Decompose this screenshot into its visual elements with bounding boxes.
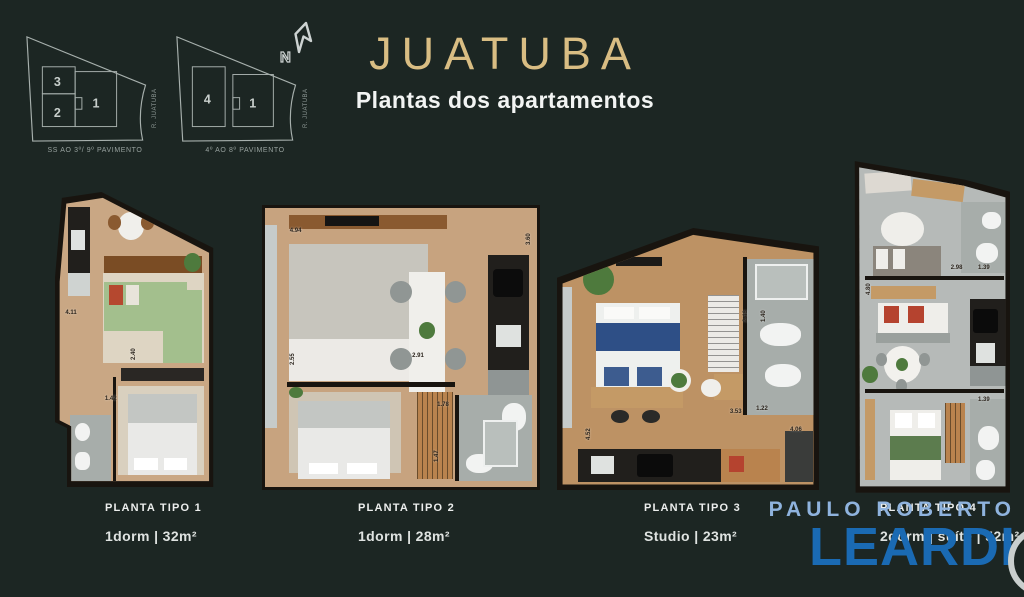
- floorplan-tipo-1: 4.112.401.42: [55, 192, 227, 487]
- plan2-spec: 1dorm | 28m²: [358, 528, 455, 544]
- plan2-dims: 4.943.602.552.911.781.47: [262, 205, 540, 490]
- keyplan1-caption: SS AO 3º/ 9º PAVIMENTO: [20, 147, 170, 154]
- plan1-label: PLANTA TIPO 1 1dorm | 32m²: [105, 502, 202, 544]
- north-arrow-icon: N: [278, 20, 314, 64]
- dimension-label: 1.39: [978, 397, 990, 403]
- keyplan-floors-ss-3-9: 3 2 1: [25, 30, 160, 146]
- floorplan-tipo-4: 2.981.394.801.39: [850, 156, 1010, 496]
- plan3-name: PLANTA TIPO 3: [644, 502, 741, 514]
- dimension-label: 2.46: [743, 311, 749, 323]
- street-label-juatuba-2: R. JUATUBA: [303, 88, 309, 128]
- plan2-label: PLANTA TIPO 2 1dorm | 28m²: [358, 502, 455, 544]
- floorplan-tipo-3: 4.522.461.403.531.224.06: [557, 228, 819, 490]
- street-label-juatuba-1: R. JUATUBA: [152, 88, 158, 128]
- dimension-label: 1.42: [105, 396, 117, 402]
- watermark-line2: LEARDI: [769, 522, 1016, 573]
- keyplan1-unit-3: 3: [54, 75, 61, 89]
- dimension-label: 2.91: [412, 353, 424, 359]
- dimension-label: 4.52: [586, 429, 592, 441]
- dimension-label: 1.40: [761, 311, 767, 323]
- plan3-dims: 4.522.461.403.531.224.06: [557, 228, 819, 490]
- keyplan1-unit-1: 1: [93, 96, 100, 110]
- plan3-spec: Studio | 23m²: [644, 528, 741, 544]
- dimension-label: 2.98: [951, 265, 963, 271]
- plan1-dims: 4.112.401.42: [55, 192, 227, 487]
- dimension-label: 4.94: [290, 228, 302, 234]
- floorplan-poster: 3 2 1 R. JUATUBA SS AO 3º/ 9º PAVIMENTO …: [0, 0, 1024, 597]
- keyplan2-unit-4: 4: [204, 92, 211, 106]
- dimension-label: 1.78: [437, 402, 449, 408]
- keyplan1-unit-2: 2: [54, 106, 61, 120]
- dimension-label: 2.40: [131, 348, 137, 360]
- dimension-label: 3.53: [730, 409, 742, 415]
- header: JUATUBA Plantas dos apartamentos: [330, 30, 680, 114]
- dimension-label: 4.80: [866, 284, 872, 296]
- plan3-label: PLANTA TIPO 3 Studio | 23m²: [644, 502, 741, 544]
- dimension-label: 1.47: [434, 450, 440, 462]
- dimension-label: 4.06: [790, 427, 802, 433]
- plan1-spec: 1dorm | 32m²: [105, 528, 202, 544]
- dimension-label: 3.60: [526, 233, 532, 245]
- plan1-name: PLANTA TIPO 1: [105, 502, 202, 514]
- keyplan2-caption: 4º AO 8º PAVIMENTO: [170, 147, 320, 154]
- project-title: JUATUBA: [330, 30, 680, 77]
- dimension-label: 1.22: [756, 406, 768, 412]
- dimension-label: 1.39: [978, 265, 990, 271]
- plan2-name: PLANTA TIPO 2: [358, 502, 455, 514]
- north-letter: N: [280, 49, 291, 64]
- dimension-label: 4.11: [65, 310, 76, 316]
- dimension-label: 2.55: [290, 353, 296, 365]
- leardi-watermark: PAULO ROBERTO LEARDI: [769, 498, 1016, 573]
- page-subtitle: Plantas dos apartamentos: [330, 87, 680, 114]
- plan4-dims: 2.981.394.801.39: [850, 156, 1010, 496]
- floorplan-tipo-2: 4.943.602.552.911.781.47: [262, 205, 540, 490]
- keyplan2-unit-1: 1: [249, 96, 256, 110]
